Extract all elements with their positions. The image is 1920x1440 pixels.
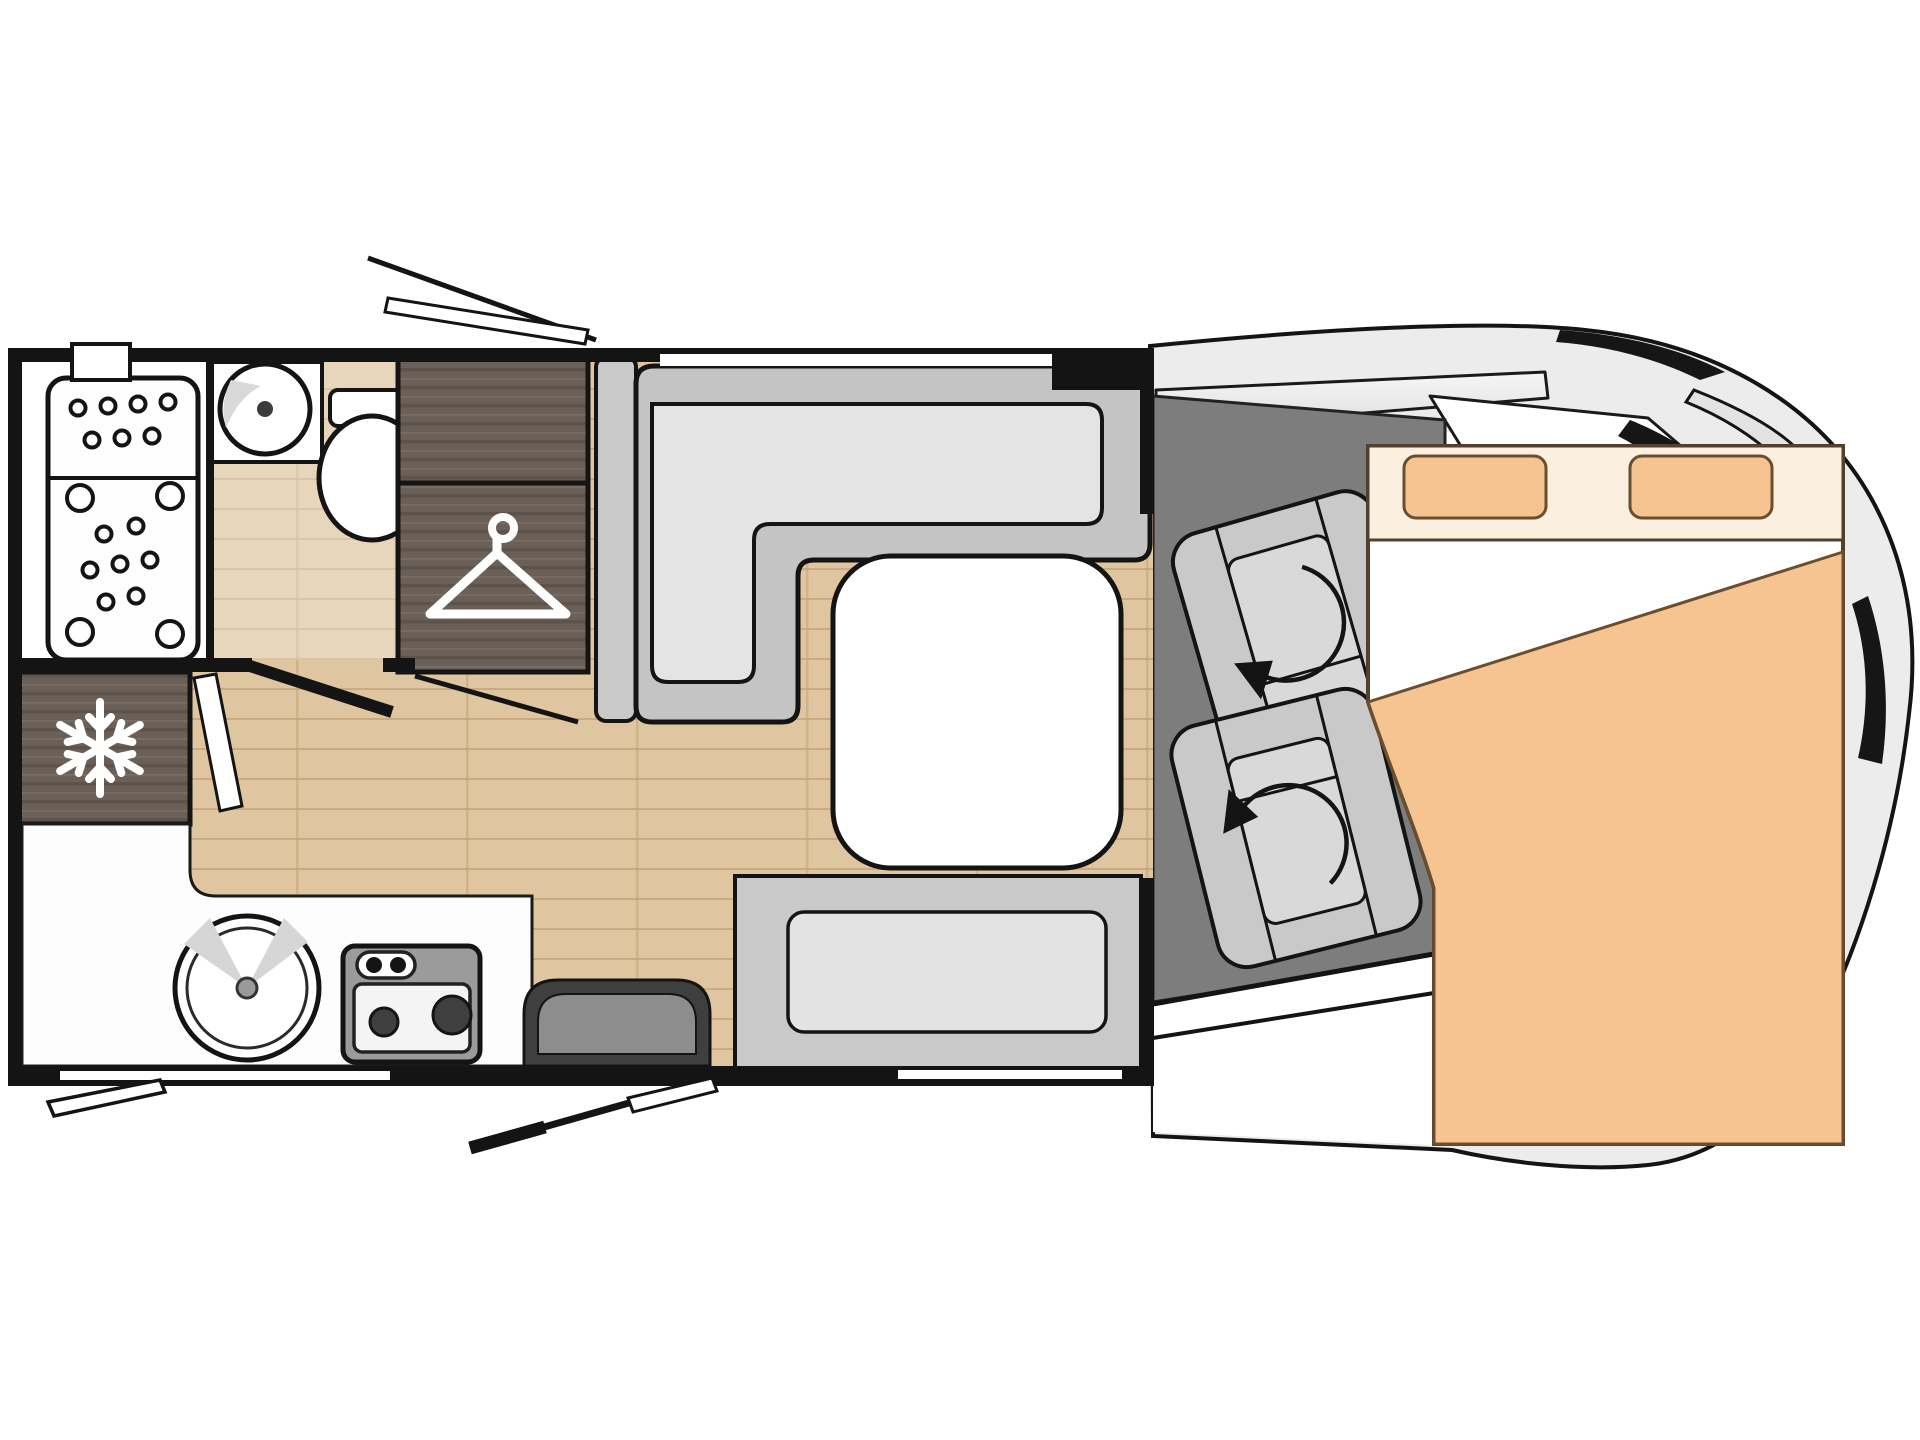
bathroom-sink-counter: [212, 362, 322, 462]
hob: [343, 946, 480, 1062]
entry-door-swing: [470, 1127, 545, 1148]
hob-knob: [390, 957, 406, 973]
fridge: [14, 672, 190, 824]
pillow: [1404, 456, 1546, 518]
window-slit: [60, 1071, 390, 1080]
wardrobe: [398, 358, 588, 672]
shower-window: [72, 344, 130, 380]
burner: [433, 996, 471, 1034]
pillow: [1630, 456, 1772, 518]
shower-tray: [48, 378, 198, 660]
window-slit: [898, 1070, 1122, 1079]
floorplan-canvas: [0, 0, 1920, 1440]
bench-seat: [735, 876, 1141, 1068]
floorplan-svg: [0, 0, 1920, 1440]
window-slit: [660, 354, 1052, 366]
shower-room: [22, 358, 208, 660]
burner: [370, 1008, 398, 1036]
dinette-table: [833, 556, 1121, 868]
sofa-side-panel: [596, 357, 636, 721]
kitchen-sink: [175, 916, 319, 1060]
entry-step: [524, 980, 710, 1066]
roof-vent-leaf: [385, 298, 588, 344]
drop-down-bed: [1368, 446, 1843, 1144]
hob-knob: [366, 957, 382, 973]
